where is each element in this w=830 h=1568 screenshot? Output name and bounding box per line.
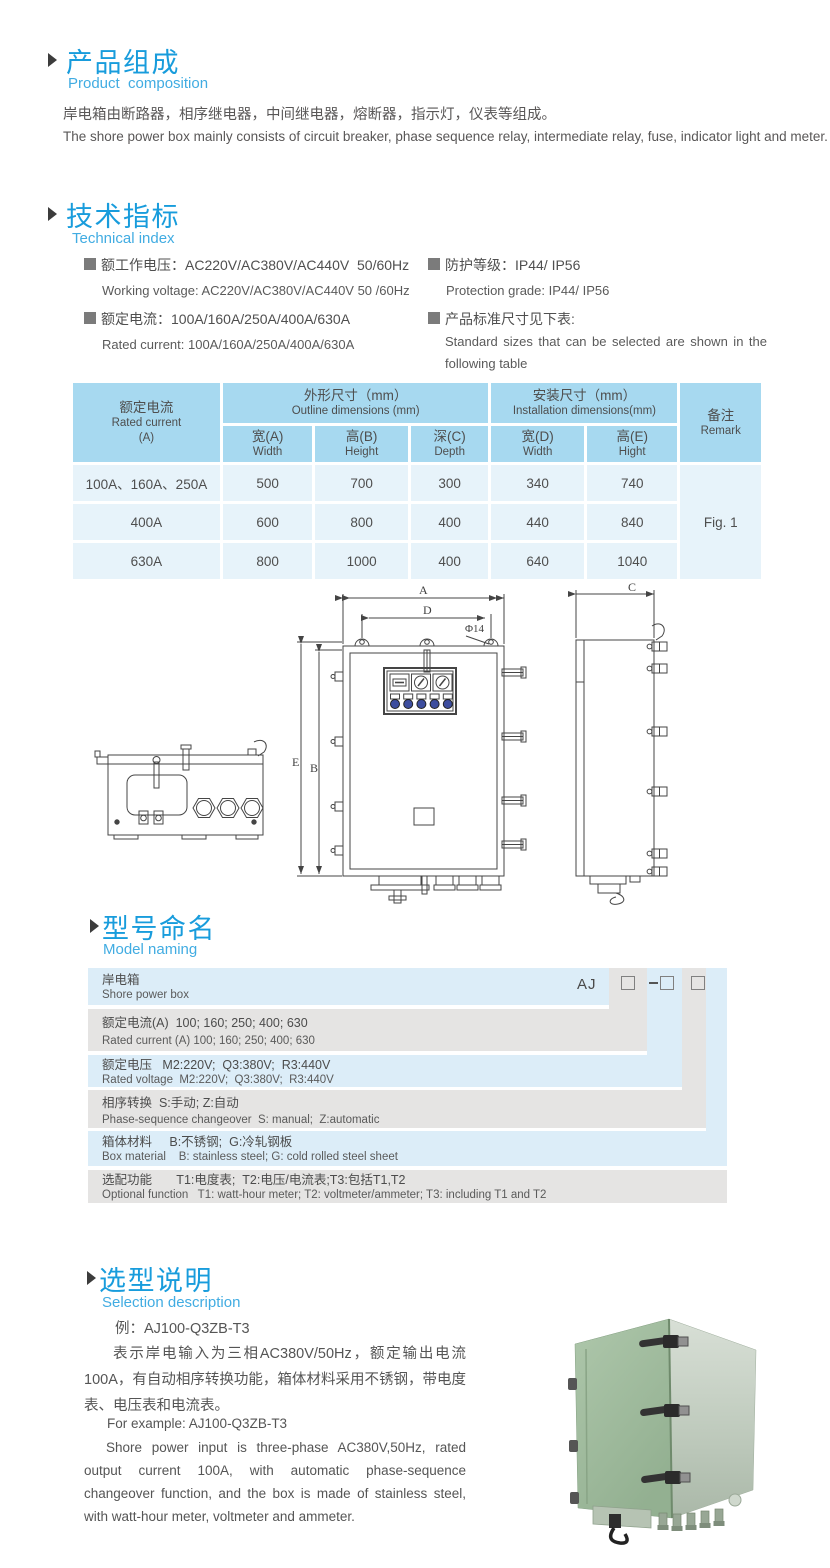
col-header-remark: 备注 Remark xyxy=(680,383,761,462)
section-marker-icon xyxy=(90,919,99,933)
table-row: 630A 800 1000 400 640 1040 xyxy=(73,543,761,579)
technical-drawing: A D Φ14 E B C xyxy=(0,582,830,907)
spec-rated-current-en: Rated current: 100A/160A/250A/400A/630A xyxy=(102,337,354,352)
model-row-rated-current: 额定电流(A) 100; 160; 250; 400; 630 Rated cu… xyxy=(88,1009,647,1051)
bottom-lock xyxy=(609,1514,621,1528)
section-subtitle-product-composition: Product composition xyxy=(68,75,208,92)
dim-label-a: A xyxy=(419,583,428,597)
section-marker-icon xyxy=(48,207,57,221)
spec-standard-sizes-zh: 产品标准尺寸见下表: xyxy=(445,309,575,329)
selection-paragraph-zh: 表示岸电输入为三相AC380V/50Hz，额定输出电流100A，有自动相序转换功… xyxy=(84,1341,466,1419)
table-row: 400A 600 800 400 440 840 xyxy=(73,504,761,540)
box-front-face xyxy=(575,1319,672,1518)
dim-label-e: E xyxy=(292,755,299,769)
selection-example-zh: 例：AJ100-Q3ZB-T3 xyxy=(84,1316,466,1342)
model-placeholder-box-voltage xyxy=(660,976,674,990)
spec-working-voltage-en: Working voltage: AC220V/AC380V/AC440V 50… xyxy=(102,283,410,298)
bullet-square-icon xyxy=(428,258,440,270)
section-title-selection: 选型说明 xyxy=(99,1259,213,1298)
model-dash xyxy=(649,982,658,984)
bullet-square-icon xyxy=(428,312,440,324)
model-row-phase-sequence: 相序转换 S:手动; Z:自动 Phase-sequence changeove… xyxy=(88,1090,706,1128)
product-photo xyxy=(553,1292,805,1568)
composition-text-zh: 岸电箱由断路器，相序继电器，中间继电器，熔断器，指示灯，仪表等组成。 xyxy=(63,103,556,124)
bottom-bracket xyxy=(593,1506,651,1528)
model-row-optional-function: 选配功能 T1:电度表; T2:电压/电流表;T3:包括T1,T2 Option… xyxy=(88,1170,727,1203)
dimension-table: 额定电流 Rated current (A) 外形尺寸（mm） Outline … xyxy=(70,380,764,582)
selection-paragraph-en: Shore power input is three-phase AC380V,… xyxy=(84,1436,466,1528)
section-subtitle-selection: Selection description xyxy=(102,1294,240,1311)
model-prefix: AJ xyxy=(577,976,597,993)
spec-protection-grade-zh: 防护等级：IP44/ IP56 xyxy=(445,255,580,275)
catalog-page: 产品组成 Product composition 岸电箱由断路器，相序继电器，中… xyxy=(0,0,830,1568)
box-side-face xyxy=(669,1319,756,1518)
model-row-rated-voltage: 额定电压 M2:220V; Q3:380V; R3:440V Rated vol… xyxy=(88,1055,682,1087)
door-seam xyxy=(586,1349,587,1504)
table-row: 100A、160A、250A 500 700 300 340 740 Fig. … xyxy=(73,465,761,501)
section-title-technical-index: 技术指标 xyxy=(66,195,180,234)
bullet-square-icon xyxy=(84,258,96,270)
col-header-rated-current: 额定电流 Rated current (A) xyxy=(73,383,220,462)
col-header-depth-c: 深(C)Depth xyxy=(411,426,488,462)
bullet-square-icon xyxy=(84,312,96,324)
lock-handle xyxy=(611,1528,627,1543)
spec-rated-current-zh: 额定电流：100A/160A/250A/400A/630A xyxy=(101,309,350,329)
model-placeholder-box-current xyxy=(621,976,635,990)
col-header-hight-e: 高(E)Hight xyxy=(587,426,678,462)
dim-label-d: D xyxy=(423,603,432,617)
composition-text-en: The shore power box mainly consists of c… xyxy=(63,129,828,144)
spec-protection-grade-en: Protection grade: IP44/ IP56 xyxy=(446,283,609,298)
section-subtitle-model-naming: Model naming xyxy=(103,941,197,958)
spec-working-voltage-zh: 额工作电压：AC220V/AC380V/AC440V 50/60Hz xyxy=(101,255,409,275)
model-placeholder-box-function xyxy=(691,976,705,990)
remark-cell: Fig. 1 xyxy=(680,465,761,579)
col-group-outline-dimensions: 外形尺寸（mm） Outline dimensions (mm) xyxy=(223,383,489,423)
model-row-box-material: 箱体材料 B:不锈钢; G:冷轧钢板 Box material B: stain… xyxy=(88,1131,727,1166)
col-header-width-a: 宽(A)Width xyxy=(223,426,313,462)
col-header-width-d: 宽(D)Width xyxy=(491,426,584,462)
section-subtitle-technical-index: Technical index xyxy=(72,230,175,247)
dim-label-b: B xyxy=(310,761,318,775)
spec-standard-sizes-en: Standard sizes that can be selected are … xyxy=(445,331,767,375)
side-vent xyxy=(729,1494,741,1506)
section-marker-icon xyxy=(87,1271,96,1285)
section-marker-icon xyxy=(48,53,57,67)
dim-label-dia14: Φ14 xyxy=(465,623,485,635)
selection-example-en: For example: AJ100-Q3ZB-T3 xyxy=(84,1412,466,1435)
model-row-shore-power-box: 岸电箱 Shore power box xyxy=(88,968,609,1005)
col-header-height-b: 高(B)Height xyxy=(315,426,408,462)
dim-label-c: C xyxy=(628,582,636,594)
col-group-installation-dimensions: 安装尺寸（mm） Installation dimensions(mm) xyxy=(491,383,677,423)
